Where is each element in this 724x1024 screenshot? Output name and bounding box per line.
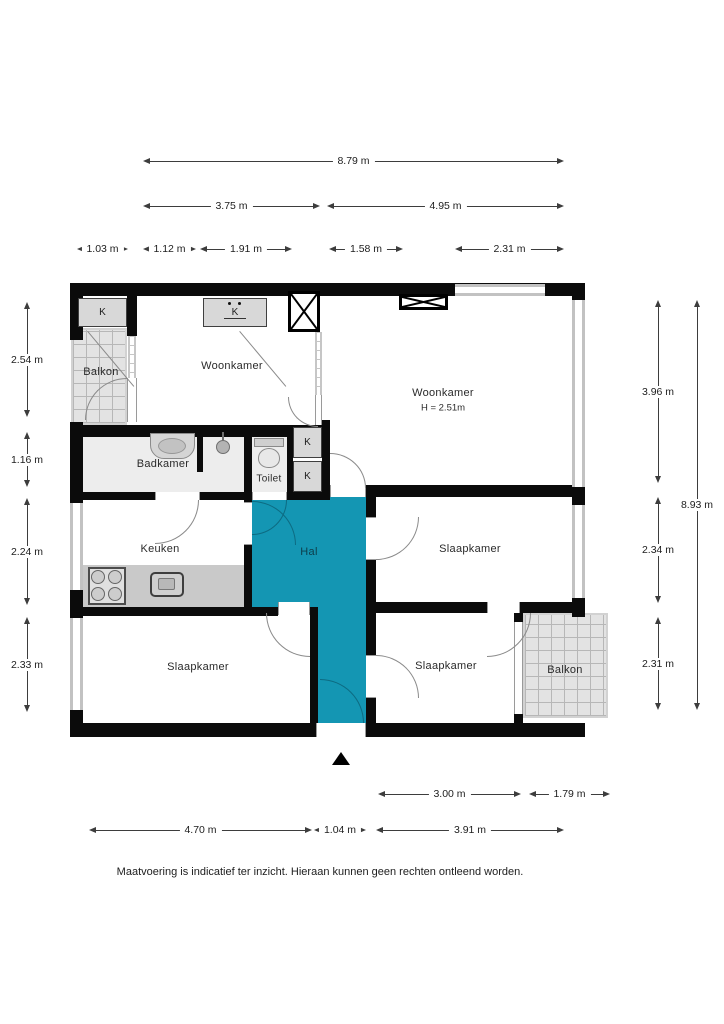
closet-hall-2: K — [293, 461, 322, 492]
wall-under-woonkamer-left — [70, 425, 322, 437]
window-slaapkamer-mid — [572, 505, 585, 598]
sink-basin-icon — [158, 578, 175, 590]
dim-left-1: 2.54 m — [21, 302, 33, 417]
dim-right-overall: 8.93 m — [691, 300, 703, 710]
dim-top-seg3: 1.91 m — [200, 243, 292, 255]
dim-label: 1.03 m — [81, 243, 123, 255]
wall-badkamer-bottom-a — [70, 492, 155, 500]
door-opening-toilet — [252, 492, 287, 500]
dim-label: 2.31 m — [488, 243, 530, 255]
dim-top-left-half: 3.75 m — [143, 200, 320, 212]
window-keuken — [70, 503, 83, 590]
closet-dots — [228, 302, 231, 305]
shower-arm-icon — [222, 432, 224, 441]
closet-balcony: K — [78, 298, 127, 327]
washbasin-bowl-icon — [158, 438, 186, 454]
dim-right-1: 3.96 m — [652, 300, 664, 483]
dim-label: 1.79 m — [548, 788, 590, 800]
closet-label: K — [99, 307, 106, 318]
dim-label: 2.34 m — [637, 544, 679, 556]
dim-right-2: 2.34 m — [652, 497, 664, 603]
shaft-horizontal-icon — [399, 294, 448, 310]
dim-bottom-seg2: 1.79 m — [529, 788, 610, 800]
closet-boiler: K — [203, 298, 267, 327]
dim-left-3: 2.24 m — [21, 498, 33, 605]
room-label-toilet: Toilet — [256, 474, 281, 485]
dim-top-right-half: 4.95 m — [327, 200, 564, 212]
dim-label: 1.16 m — [6, 454, 48, 466]
closet-label: K — [224, 307, 247, 319]
dim-bottom-seg5: 3.91 m — [376, 824, 564, 836]
room-label-slaapkamer-mid: Slaapkamer — [439, 543, 501, 555]
wall-badkamer-stub — [197, 437, 203, 472]
dim-top-seg5: 2.31 m — [455, 243, 564, 255]
dim-label: 1.91 m — [225, 243, 267, 255]
wall-right-of-closets — [322, 420, 330, 497]
dim-label: 3.91 m — [449, 824, 491, 836]
room-label-balkon-br: Balkon — [547, 664, 582, 676]
dim-left-2: 1.16 m — [21, 432, 33, 487]
dim-top-seg4: 1.58 m — [329, 243, 403, 255]
dim-bottom-seg3: 4.70 m — [89, 824, 312, 836]
room-label-keuken: Keuken — [140, 543, 179, 555]
room-label-woonkamer-left: Woonkamer — [201, 360, 263, 372]
dim-label: 2.31 m — [637, 658, 679, 670]
dim-right-3: 2.31 m — [652, 617, 664, 710]
wall-balcony-post-bottom — [514, 714, 523, 723]
dim-label: 2.33 m — [6, 659, 48, 671]
room-label-badkamer: Badkamer — [137, 458, 190, 470]
stove-burner-icon — [91, 587, 105, 601]
room-label-slaapkamer-br: Slaapkamer — [415, 660, 477, 672]
wall-slaapkamers-right-a — [366, 602, 487, 613]
dim-bottom-seg4: 1.04 m — [314, 824, 366, 836]
dim-label: 2.24 m — [6, 546, 48, 558]
dim-left-4: 2.33 m — [21, 617, 33, 712]
dim-bottom-seg1: 3.00 m — [378, 788, 521, 800]
wall-corridor-left — [310, 607, 318, 723]
wall-balcony-jamb — [127, 296, 137, 336]
wall-keuken-bottom — [70, 607, 278, 616]
dim-label: 1.04 m — [319, 824, 361, 836]
room-label-balkon-tl: Balkon — [83, 366, 118, 378]
closet-label: K — [304, 471, 311, 482]
dim-label: 3.75 m — [210, 200, 252, 212]
dim-label: 1.58 m — [345, 243, 387, 255]
room-height-note: H = 2.51m — [421, 403, 465, 414]
wall-hal-right-c — [366, 613, 376, 655]
dim-label: 1.12 m — [148, 243, 190, 255]
door-opening-badkamer — [155, 492, 200, 500]
toilet-bowl-icon — [258, 448, 280, 468]
window-woonkamer-right — [572, 300, 585, 487]
entrance-triangle-icon — [332, 752, 350, 765]
window-slaapkamer-bl — [70, 618, 83, 710]
door-opening-slaapkamer-mid — [366, 517, 376, 560]
dim-top-seg2: 1.12 m — [143, 243, 196, 255]
closet-hall-1: K — [293, 427, 322, 458]
stove-burner-icon — [91, 570, 105, 584]
dim-label: 8.93 m — [676, 499, 718, 511]
dim-label: 2.54 m — [6, 354, 48, 366]
wall-badkamer-toilet — [244, 425, 252, 497]
wall-hal-right-a — [366, 497, 376, 517]
wall-keuken-hal-b — [244, 545, 252, 607]
door-opening-balcony-br — [487, 602, 520, 613]
stove-burner-icon — [108, 570, 122, 584]
partition-glass-woonkamers — [315, 332, 322, 395]
door-opening-slaapkamer-br — [366, 655, 376, 698]
stove-burner-icon — [108, 587, 122, 601]
disclaimer-text: Maatvoering is indicatief ter inzicht. H… — [0, 866, 640, 878]
shower-icon — [216, 440, 230, 454]
wall-under-closets — [287, 492, 330, 500]
balcony-glass-panel — [128, 336, 136, 378]
window-woonkamer-top — [455, 284, 545, 296]
floorplan-page: 8.79 m 3.75 m 4.95 m 1.03 m 1.12 m 1.91 … — [0, 0, 724, 1024]
dim-label: 4.95 m — [424, 200, 466, 212]
dim-label: 3.00 m — [428, 788, 470, 800]
room-label-woonkamer-right: Woonkamer — [412, 387, 474, 399]
toilet-tank-icon — [254, 438, 284, 447]
closet-label: K — [304, 437, 311, 448]
front-door-opening — [316, 723, 366, 737]
wall-woonkamer-right-bottom — [366, 485, 572, 497]
closet-dots — [238, 302, 241, 305]
dim-top-seg1: 1.03 m — [77, 243, 128, 255]
dim-label: 3.96 m — [637, 386, 679, 398]
wall-hal-right-d — [366, 698, 376, 723]
shaft-icon — [288, 291, 320, 332]
door-opening-keuken-hal — [244, 502, 252, 545]
dim-label: 8.79 m — [332, 155, 374, 167]
room-label-hal: Hal — [300, 546, 317, 558]
dim-label: 4.70 m — [179, 824, 221, 836]
dim-top-overall: 8.79 m — [143, 155, 564, 167]
room-label-slaapkamer-bl: Slaapkamer — [167, 661, 229, 673]
wall-slaapkamers-right-b — [520, 602, 572, 613]
